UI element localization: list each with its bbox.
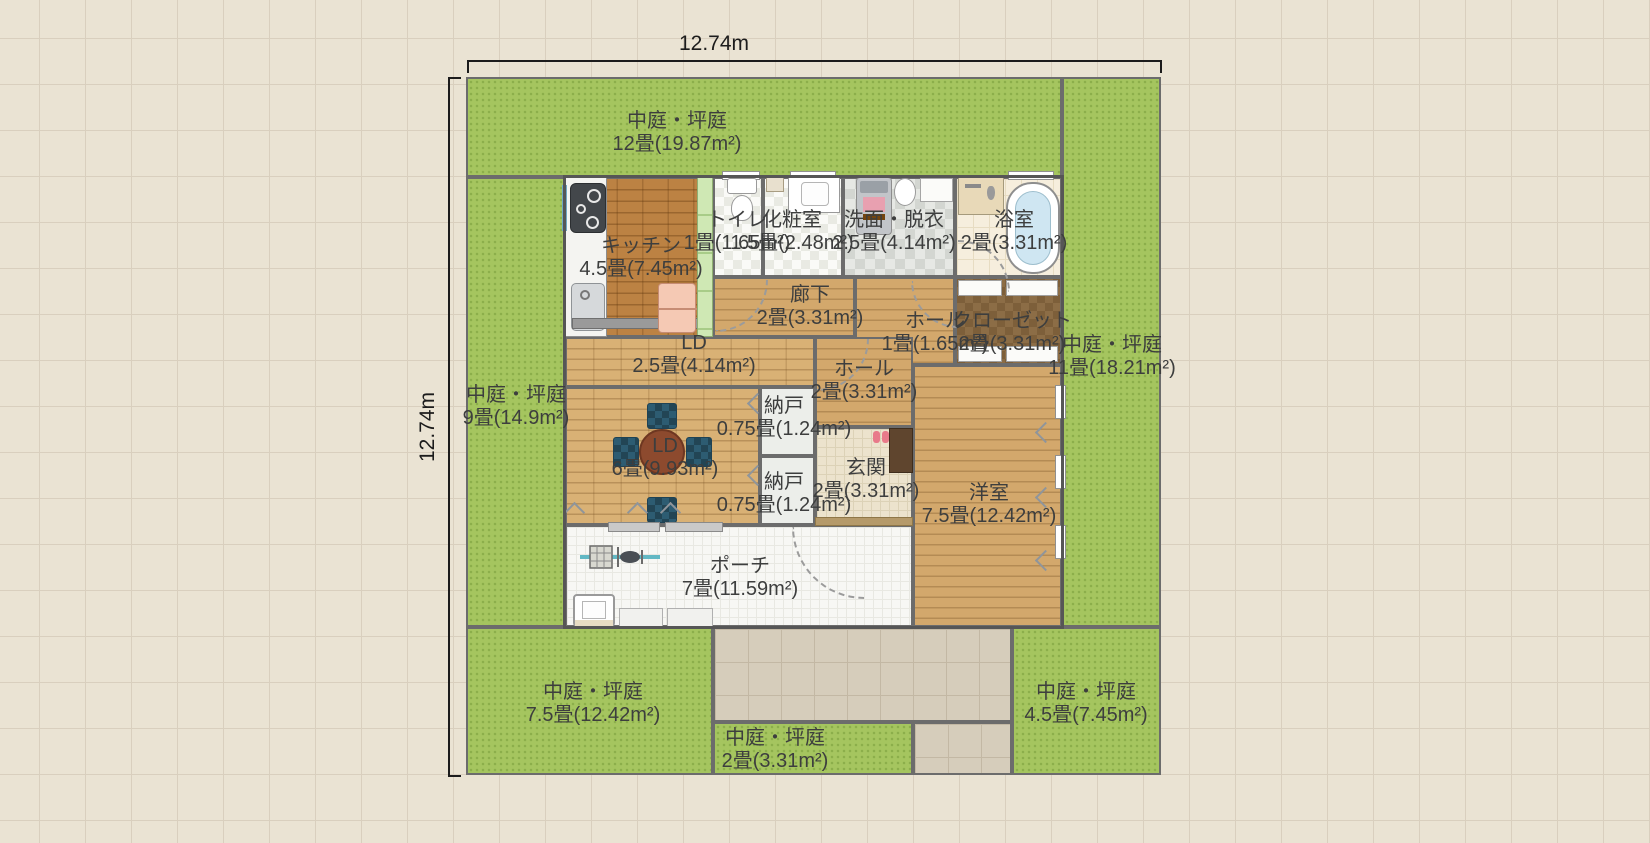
washroom-counter[interactable]: [920, 178, 953, 202]
slippers-icon: [882, 431, 889, 443]
bench[interactable]: [667, 608, 713, 627]
wash-basin-icon[interactable]: [894, 178, 916, 206]
storage-upper-label: 納戸0.75畳(1.24m²): [717, 395, 852, 441]
bathroom-label: 浴室2畳(3.31m²): [961, 209, 1068, 255]
dimension-tick: [467, 60, 469, 73]
kitchen-window-icon[interactable]: [562, 185, 567, 231]
dimension-width-label: 12.74m: [679, 32, 749, 56]
dimension-line-left: [448, 77, 450, 777]
ld-main-label: LD6畳(9.93m²): [612, 435, 719, 481]
window-icon[interactable]: [1055, 525, 1066, 559]
washroom-label: 洗面・脱衣2.5畳(4.14m²): [832, 209, 955, 255]
slippers-icon: [873, 431, 880, 443]
dimension-tick: [1160, 60, 1162, 73]
courtyard-left-label: 中庭・坪庭9畳(14.9m²): [463, 384, 570, 430]
closet-shelf[interactable]: [1006, 280, 1058, 296]
bicycle-icon[interactable]: [576, 540, 664, 574]
window-icon[interactable]: [1055, 385, 1066, 419]
corner-shelf[interactable]: [766, 176, 784, 192]
bench[interactable]: [619, 608, 663, 627]
porch-label: ポーチ7畳(11.59m²): [682, 555, 798, 601]
western-room-label: 洋室7.5畳(12.42m²): [922, 482, 1057, 528]
window-icon[interactable]: [665, 522, 723, 532]
closet-label: クローゼット2畳(3.31m²): [952, 310, 1072, 356]
courtyard-bottom-center-label: 中庭・坪庭2畳(3.31m²): [722, 727, 829, 773]
ld-upper-label: LD2.5畳(4.14m²): [632, 332, 755, 378]
dimension-tick: [448, 775, 461, 777]
walkway-path[interactable]: [913, 722, 1012, 775]
dimension-line-top: [467, 60, 1162, 62]
corridor-label: 廊下2畳(3.31m²): [757, 284, 864, 330]
dimension-height-label: 12.74m: [416, 392, 440, 462]
floor-plan-canvas: { "dimensions": { "width": "12.74m", "he…: [0, 0, 1650, 843]
gas-stove-icon[interactable]: [570, 183, 606, 233]
toilet-icon[interactable]: [727, 178, 757, 194]
courtyard-top-label: 中庭・坪庭12畳(19.87m²): [613, 110, 742, 156]
garden-sink-icon[interactable]: [573, 594, 615, 627]
chair-icon[interactable]: [647, 403, 677, 429]
entrance-step[interactable]: [815, 517, 913, 526]
refrigerator-icon[interactable]: [658, 283, 696, 333]
window-icon[interactable]: [1008, 171, 1054, 180]
vanity-sink-icon[interactable]: [788, 175, 840, 213]
window-icon[interactable]: [608, 522, 660, 532]
courtyard-bottom-left-label: 中庭・坪庭7.5畳(12.42m²): [526, 681, 661, 727]
walkway-path[interactable]: [713, 627, 1012, 722]
courtyard-bottom-right-label: 中庭・坪庭4.5畳(7.45m²): [1024, 681, 1147, 727]
entrance-label: 玄関2畳(3.31m²): [813, 457, 920, 503]
dimension-tick: [448, 77, 461, 79]
courtyard-top[interactable]: [466, 77, 1062, 177]
window-icon[interactable]: [1055, 455, 1066, 489]
